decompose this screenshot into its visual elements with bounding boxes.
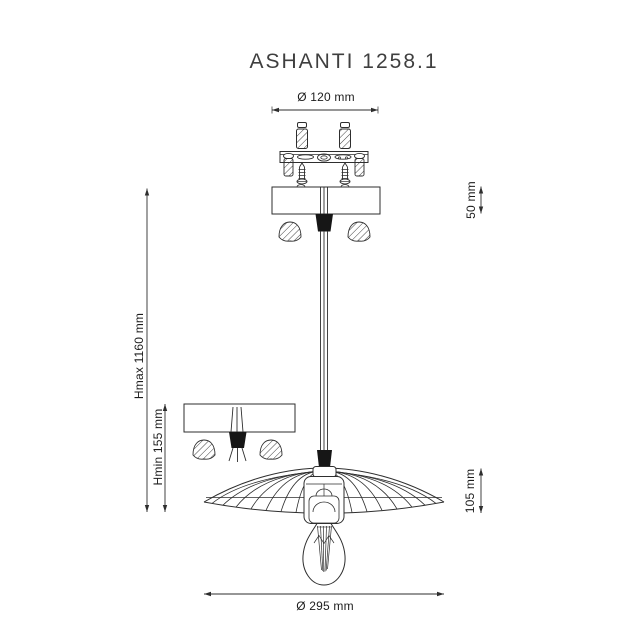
dim-mount-diameter-label: Ø 120 mm <box>297 91 355 103</box>
wall-plug-icon <box>297 123 351 149</box>
cord-grip-icon <box>317 450 332 468</box>
light-bulb <box>303 524 345 586</box>
ceiling-canopy <box>272 185 380 242</box>
dim-canopy-height-label: 50 mm <box>465 181 477 219</box>
dim-shade-diameter-label: Ø 295 mm <box>296 600 354 612</box>
dim-shade-height-label: 105 mm <box>464 469 476 514</box>
compact-mount-view <box>184 404 295 462</box>
dim-canopy-height-line <box>479 187 483 214</box>
bulb-filament <box>314 526 334 572</box>
dim-hmin-label: Hmin 155 mm <box>152 409 164 486</box>
dim-shade-height-line <box>479 469 483 514</box>
socket-housing <box>304 477 344 524</box>
dim-mount-diameter-line <box>272 107 378 114</box>
screw-icon <box>297 163 350 184</box>
mounting-kit <box>280 123 368 184</box>
technical-drawing-page: ASHANTI 1258.1 <box>0 0 630 630</box>
dim-hmax-label: Hmax 1160 mm <box>133 313 145 399</box>
cord-grip-icon <box>316 214 334 232</box>
dim-shade-diameter-line <box>204 592 444 596</box>
cord-grip-icon <box>229 432 247 448</box>
lampshade <box>204 450 444 524</box>
suspension-cable <box>321 231 328 452</box>
